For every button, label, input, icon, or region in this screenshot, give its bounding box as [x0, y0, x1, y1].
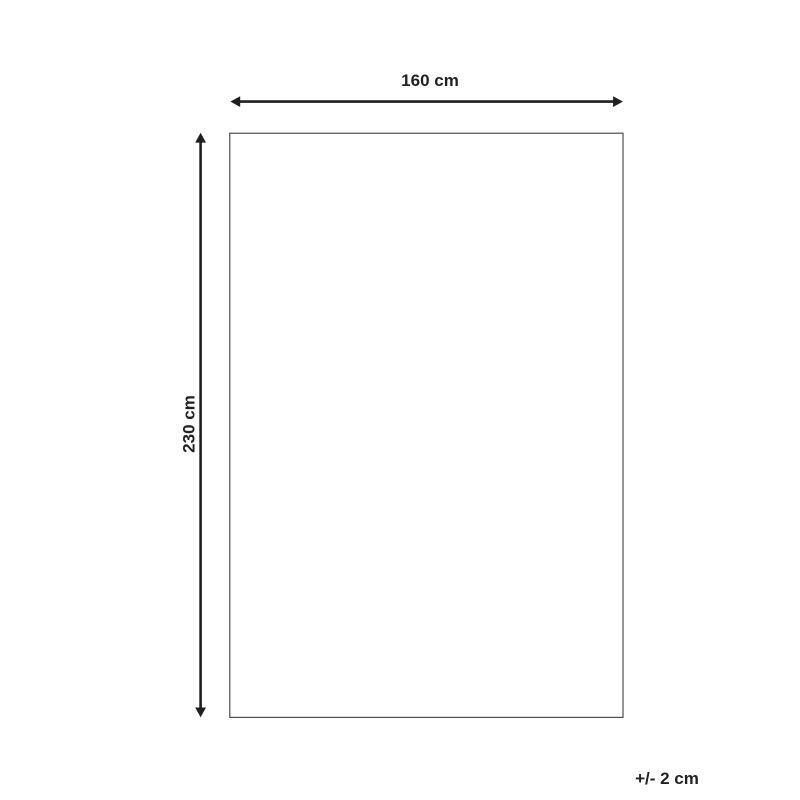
svg-text:+/- 2 cm: +/- 2 cm [635, 769, 699, 788]
svg-text:230 cm: 230 cm [180, 395, 199, 453]
svg-text:160 cm: 160 cm [401, 71, 459, 90]
